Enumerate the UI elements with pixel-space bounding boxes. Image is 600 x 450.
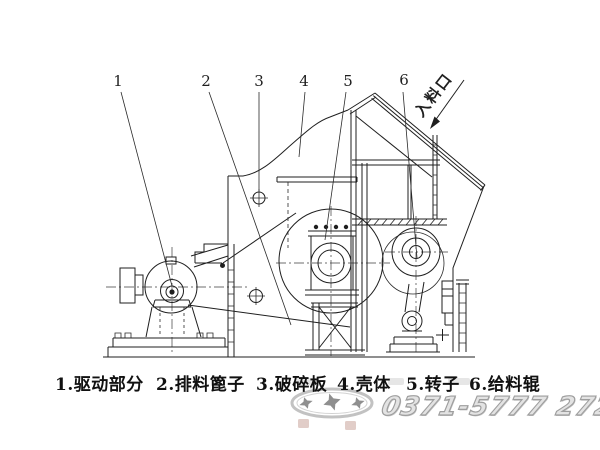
part-number-5: 5 xyxy=(343,72,353,90)
part-number-6: 6 xyxy=(399,71,409,89)
part-number-4: 4 xyxy=(299,72,309,90)
caption-item-1: 1.驱动部分 xyxy=(55,370,144,395)
centerlines xyxy=(106,206,448,356)
caption-item-4: 4.壳体 xyxy=(337,370,391,395)
motor-drive-group xyxy=(108,245,228,357)
inlet-label: 入料口 xyxy=(411,69,457,120)
caption-item-6: 6.给料辊 xyxy=(469,370,540,395)
part-number-1: 1 xyxy=(113,72,123,90)
feed-roller-group xyxy=(382,228,444,352)
part-number-labels: 1 2 3 4 5 6 xyxy=(113,71,409,90)
watermark-phone: 0371-5777 2727 xyxy=(379,392,600,422)
caption-item-5: 5.转子 xyxy=(406,370,460,395)
caption-item-3: 3.破碎板 xyxy=(256,370,327,395)
leader-lines xyxy=(121,92,417,325)
caption-item-2: 2.排料篦子 xyxy=(156,370,245,395)
part-number-3: 3 xyxy=(254,72,264,90)
logo-character-mark xyxy=(345,421,356,430)
part-number-2: 2 xyxy=(201,72,211,90)
logo-character-mark xyxy=(298,419,309,428)
diagram-page: 1 2 3 4 5 6 入料口 0371-5777 2727 1.驱动部分 2.… xyxy=(0,0,600,450)
